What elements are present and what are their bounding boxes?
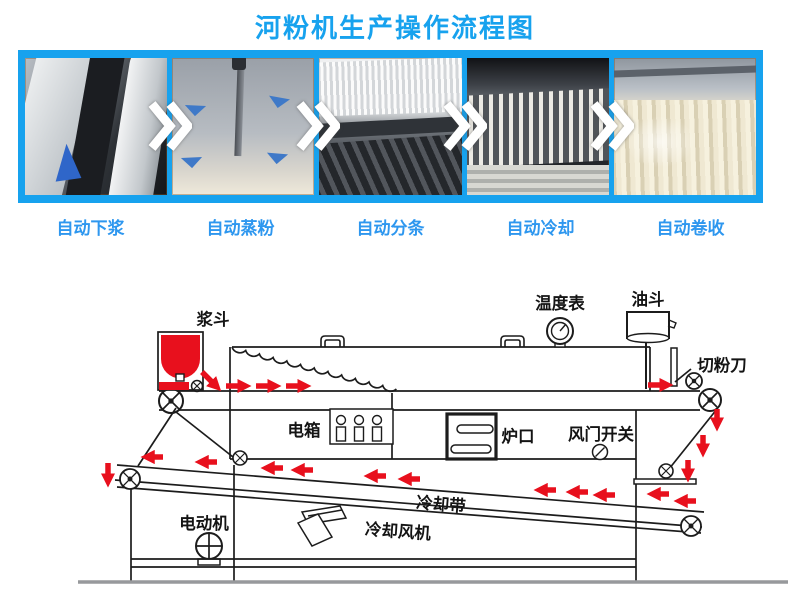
lid-handle-icon: [321, 336, 344, 347]
photo-texture: [235, 60, 245, 156]
slurry-hopper-label: 浆斗: [197, 309, 230, 329]
step-arrow-icon: [441, 99, 487, 153]
process-step-label: 自动下浆: [18, 214, 163, 239]
infographic-page: 河粉机生产操作流程图: [0, 0, 790, 615]
process-captions: 自动下浆 自动蒸粉 自动分条 自动冷却 自动卷收: [18, 214, 763, 239]
damper-switch-label: 风门开关: [568, 424, 635, 444]
photo-texture: [51, 142, 82, 181]
photo-texture: [624, 116, 696, 168]
discharge-shelf: [634, 479, 696, 484]
process-step-label: 自动分条: [318, 214, 463, 239]
photo-texture: [267, 143, 288, 164]
photo-auto-rolling: [614, 58, 756, 195]
damper-switch-icon: [593, 445, 608, 460]
oil-hopper-label: 油斗: [632, 289, 665, 309]
furnace-mouth-icon: [447, 414, 496, 459]
temperature-gauge-icon: [547, 318, 573, 347]
photo-texture: [232, 58, 246, 70]
steam-conveyor-belt: [159, 381, 721, 414]
electric-motor-icon: [196, 533, 222, 565]
process-photo-strip: [18, 50, 763, 203]
photo-texture: [269, 87, 290, 108]
page-title: 河粉机生产操作流程图: [0, 8, 790, 45]
cooling-fan-icon: [298, 506, 346, 546]
lid-handle-icon: [501, 336, 524, 347]
photo-texture: [614, 65, 756, 77]
furnace-mouth-label: 炉口: [502, 426, 535, 446]
electric-motor-label: 电动机: [179, 513, 229, 533]
process-step-label: 自动蒸粉: [168, 214, 313, 239]
cooling-belt-label: 冷却带: [416, 492, 467, 516]
machine-diagram: 浆斗 温度表 油斗 切粉刀 电箱 炉口 风门开关 冷却带 冷却风机 电动机: [0, 260, 790, 615]
process-step-label: 自动冷却: [468, 214, 613, 239]
photo-texture: [467, 165, 609, 195]
step-arrow-icon: [146, 99, 192, 153]
oil-hopper-icon: [627, 312, 676, 389]
step-arrow-icon: [588, 99, 634, 153]
noodle-cutter-label: 切粉刀: [697, 355, 747, 375]
process-step-label: 自动卷收: [618, 214, 763, 239]
temperature-gauge-label: 温度表: [535, 293, 585, 313]
cooling-fan-label: 冷却风机: [364, 519, 432, 544]
electric-box-label: 电箱: [288, 420, 321, 440]
machine-body: [78, 312, 788, 582]
step-arrow-icon: [294, 99, 340, 153]
switch-icon: [337, 416, 382, 442]
